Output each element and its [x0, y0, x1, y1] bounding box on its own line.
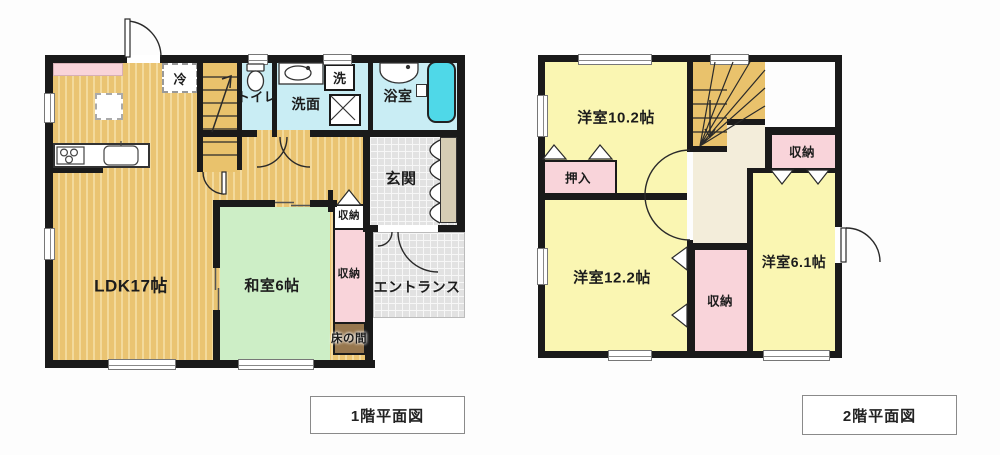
ldk-label: LDK17帖: [94, 272, 168, 297]
wall: [213, 200, 220, 268]
bathtub: [427, 61, 456, 123]
oshiire-label: 押入: [565, 168, 591, 187]
west-room-122-label: 洋室12.2帖: [573, 267, 651, 288]
wall: [687, 243, 747, 248]
laundry-pan-box: [329, 94, 361, 126]
wall: [328, 190, 333, 212]
hall-storage-label: 収納: [338, 208, 360, 223]
washitsu-storage-label: 収納: [338, 265, 361, 281]
floor2-caption: 2階平面図: [843, 405, 916, 426]
window: [578, 54, 652, 65]
kitchen-half-wall: [53, 168, 103, 173]
refrigerator-label: 冷: [173, 69, 186, 88]
stairs2f-floor: [693, 62, 727, 146]
washer-label: 洗: [333, 68, 346, 87]
wall: [368, 130, 457, 137]
wall: [363, 130, 370, 232]
wall: [45, 360, 375, 368]
wall: [197, 130, 257, 137]
wall: [237, 55, 242, 170]
floor-plan-canvas: 冷 洗 LDK17帖 和室6帖 トイレ 洗面 浴室 玄関 エントランス 収納 収…: [0, 0, 1000, 455]
refrigerator-box: 冷: [162, 63, 198, 93]
window: [44, 228, 55, 260]
hall2f-floor: [747, 152, 765, 168]
floor1-caption-box: 1階平面図: [310, 396, 465, 434]
wall: [835, 55, 842, 358]
washer-box: 洗: [324, 64, 355, 91]
door-opening: [378, 225, 438, 232]
wall: [765, 127, 771, 170]
window: [710, 54, 749, 65]
wall: [690, 146, 727, 152]
entrance-porch-tile: [373, 232, 465, 318]
window: [537, 95, 548, 137]
wall: [727, 119, 765, 125]
stairs1f-floor: [203, 63, 237, 172]
hall2f-floor: [693, 152, 747, 243]
wall: [213, 200, 275, 207]
storage-mid-label: 収納: [707, 291, 733, 310]
genkan-shoe-closet: [440, 137, 457, 223]
window: [608, 350, 652, 361]
wall: [197, 55, 203, 172]
window: [248, 54, 268, 65]
genkan-label: 玄関: [385, 168, 416, 189]
door-opening: [127, 55, 160, 63]
washitsu-label: 和室6帖: [244, 275, 299, 296]
wall: [368, 55, 373, 137]
window: [238, 359, 314, 370]
door-opening: [835, 227, 842, 263]
window: [537, 248, 548, 285]
entrance-label: エントランス: [374, 277, 461, 297]
wall: [213, 310, 220, 360]
toilet-label: トイレ: [237, 87, 278, 106]
wall: [747, 170, 753, 358]
wall: [457, 55, 465, 232]
dining-table-outline: [95, 93, 123, 120]
kitchen-back-counter: [53, 63, 123, 76]
window: [44, 93, 55, 123]
wall: [747, 168, 842, 173]
storage-ne-label: 収納: [789, 142, 815, 161]
bathtub-deck: [416, 84, 427, 97]
wall: [765, 127, 842, 133]
wall: [365, 225, 373, 368]
kitchen-counter: [53, 143, 150, 168]
window: [763, 350, 830, 361]
floor1-caption: 1階平面図: [351, 405, 424, 426]
wall: [310, 130, 368, 137]
wall: [687, 55, 693, 152]
stairs2f-floor-upper: [727, 62, 765, 119]
senmen-label: 洗面: [292, 94, 321, 114]
wall: [538, 193, 687, 200]
bath-label: 浴室: [384, 86, 413, 106]
floor2-caption-box: 2階平面図: [802, 395, 957, 435]
west-room-102-label: 洋室10.2帖: [577, 107, 655, 128]
wall: [687, 240, 693, 351]
west-room-61-label: 洋室6.1帖: [762, 252, 826, 272]
hall2f-floor: [727, 125, 765, 152]
tokonoma-label: 床の間: [331, 330, 367, 346]
window: [323, 54, 352, 65]
window: [108, 359, 176, 370]
